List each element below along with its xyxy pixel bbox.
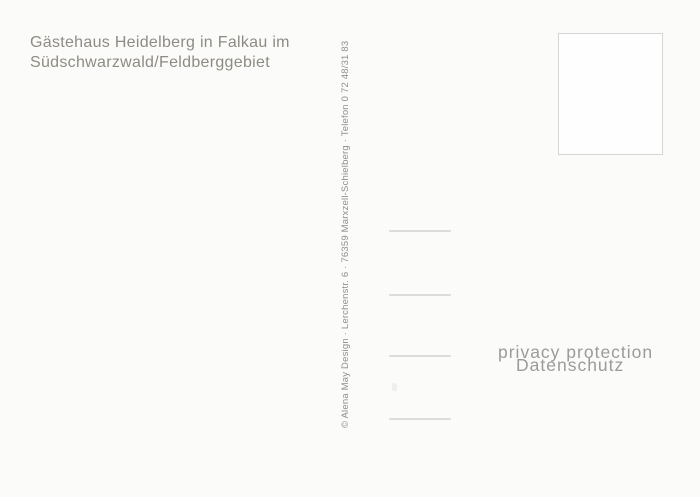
address-ruling-line: [389, 418, 451, 420]
postcard-back: Gästehaus Heidelberg in Falkau im Südsch…: [0, 0, 700, 497]
address-ruling-line: [389, 294, 451, 296]
address-ruling-line: [389, 230, 451, 232]
caption-line-2: Südschwarzwald/Feldberggebiet: [30, 53, 290, 73]
caption-line-1: Gästehaus Heidelberg in Falkau im: [30, 33, 290, 53]
privacy-watermark-de: Datenschutz: [516, 355, 624, 376]
stamp-box: [558, 33, 663, 155]
address-ruling-line: [389, 355, 451, 357]
publisher-credit: © Alena May Design · Lerchenstr. 6 · 763…: [340, 28, 353, 428]
faint-print-smudge: [392, 383, 397, 391]
caption-block: Gästehaus Heidelberg in Falkau im Südsch…: [30, 33, 290, 73]
